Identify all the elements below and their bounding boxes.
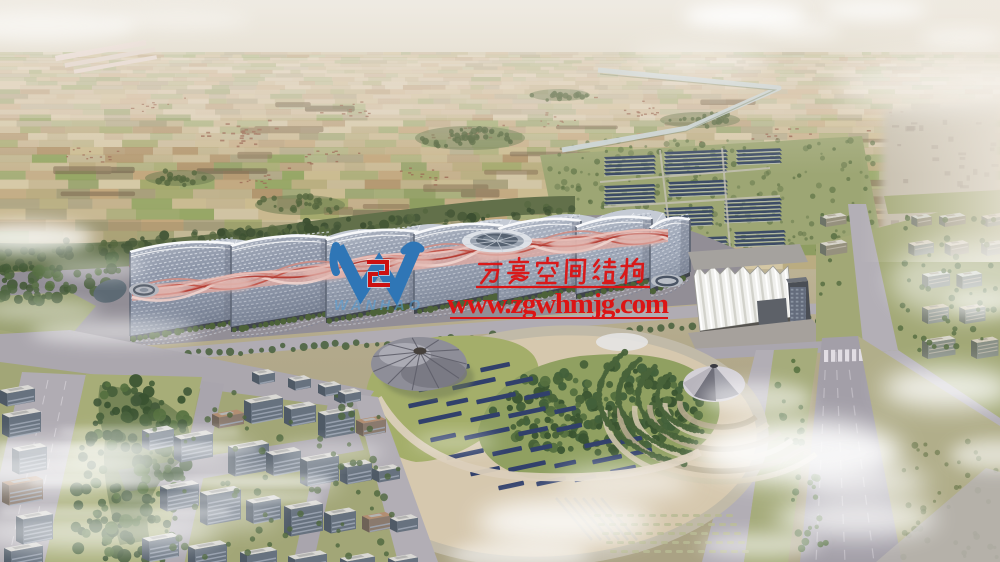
svg-text:www.zgwhmjg.com: www.zgwhmjg.com	[447, 288, 669, 320]
